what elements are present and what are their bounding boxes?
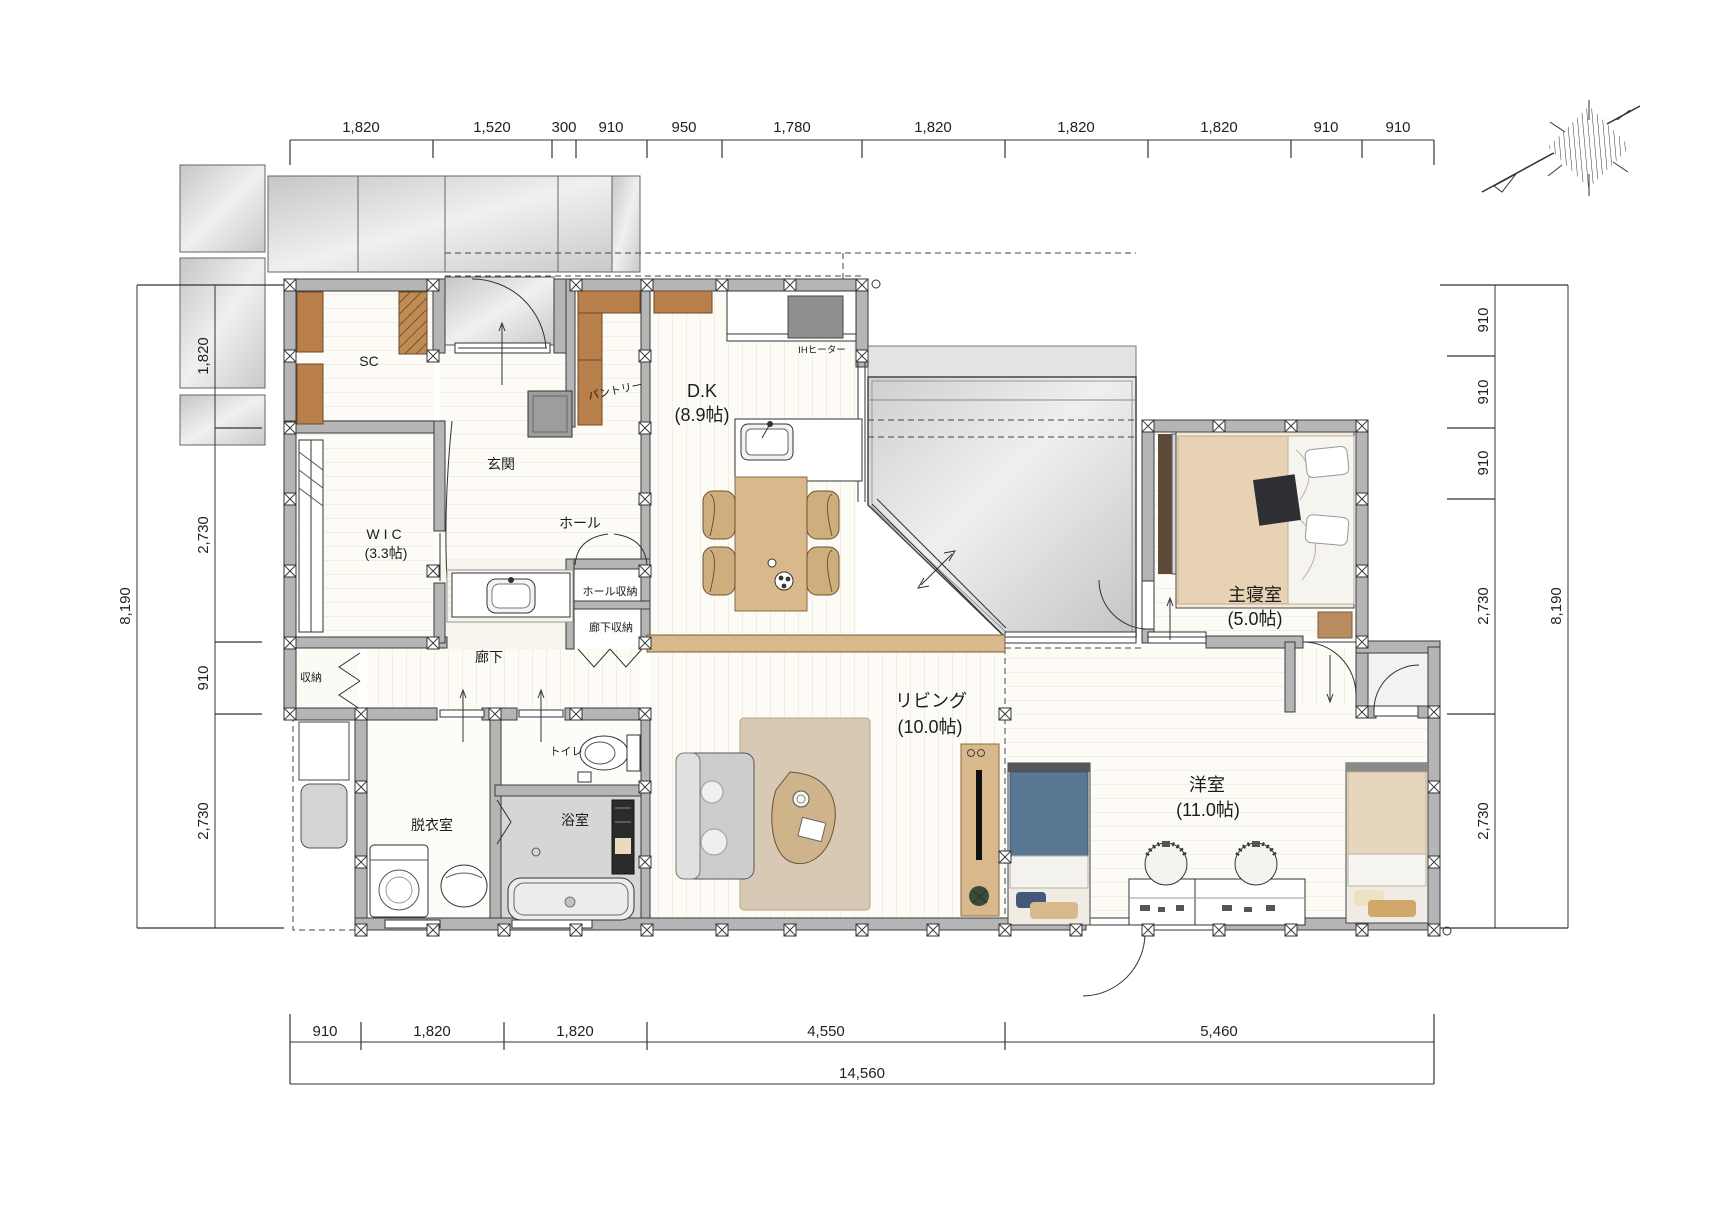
label-master-size: (5.0帖) bbox=[1227, 609, 1282, 629]
vanity-counter bbox=[447, 570, 573, 622]
dim-bottom-5: 5,460 bbox=[1200, 1023, 1238, 1040]
label-master: 主寝室 bbox=[1228, 585, 1282, 605]
corner-marker bbox=[872, 280, 880, 288]
dim-top-11: 910 bbox=[1385, 119, 1410, 136]
label-western: 洋室 bbox=[1189, 775, 1225, 795]
tv bbox=[976, 770, 982, 860]
label-wic-size: (3.3帖) bbox=[365, 545, 408, 561]
washing-machine bbox=[370, 845, 428, 917]
study-desks bbox=[1129, 879, 1305, 925]
label-dressing: 脱衣室 bbox=[411, 817, 453, 833]
label-living: リビング bbox=[895, 691, 967, 711]
dimension-right: 910 910 910 2,730 2,730 8,190 bbox=[1440, 285, 1568, 928]
dim-bottom-3: 1,820 bbox=[556, 1023, 594, 1040]
label-storage: 収納 bbox=[300, 671, 322, 684]
dim-top-8: 1,820 bbox=[1057, 119, 1095, 136]
north-arrow-icon bbox=[1482, 100, 1640, 196]
bed-beige bbox=[1346, 763, 1428, 923]
dim-left-1: 1,820 bbox=[195, 337, 212, 375]
dimension-bottom: 910 1,820 1,820 4,550 5,460 14,560 bbox=[290, 1014, 1434, 1084]
dim-right-total: 8,190 bbox=[1548, 587, 1565, 625]
dim-bottom-1: 910 bbox=[312, 1023, 337, 1040]
dim-right-1: 910 bbox=[1475, 307, 1492, 332]
dim-bottom-2: 1,820 bbox=[413, 1023, 451, 1040]
dim-left-total: 8,190 bbox=[117, 587, 134, 625]
label-corridor-storage: 廊下収納 bbox=[589, 620, 633, 634]
dim-top-1: 1,820 bbox=[342, 119, 380, 136]
label-genkan: 玄関 bbox=[487, 456, 515, 472]
table-item bbox=[768, 559, 776, 567]
wood-beam bbox=[647, 635, 1005, 652]
dim-right-2: 910 bbox=[1475, 379, 1492, 404]
shoe-cabinet bbox=[399, 292, 427, 354]
dim-top-10: 910 bbox=[1313, 119, 1338, 136]
label-hall-storage: ホール収納 bbox=[583, 585, 638, 598]
dimension-top: 1,820 1,520 300 910 950 1,780 1,820 1,82… bbox=[290, 119, 1434, 165]
shower-unit bbox=[612, 800, 634, 874]
dim-left-4: 2,730 bbox=[195, 802, 212, 840]
bed-throw bbox=[1253, 474, 1301, 525]
dim-right-4: 2,730 bbox=[1475, 587, 1492, 625]
dim-bottom-total: 14,560 bbox=[839, 1065, 885, 1082]
label-dk-size: (8.9帖) bbox=[674, 405, 729, 425]
dim-left-2: 2,730 bbox=[195, 516, 212, 554]
label-ih: IHヒーター bbox=[798, 345, 846, 356]
dim-top-4: 910 bbox=[598, 119, 623, 136]
label-wic: WIC bbox=[366, 526, 405, 542]
dim-left-3: 910 bbox=[195, 665, 212, 690]
label-corridor: 廊下 bbox=[475, 649, 503, 665]
bedside-table bbox=[1318, 612, 1352, 638]
label-dk: D.K bbox=[687, 381, 717, 401]
ih-cooktop bbox=[788, 296, 843, 338]
master-bedroom-furniture bbox=[1158, 432, 1354, 638]
dim-top-3: 300 bbox=[551, 119, 576, 136]
floor-plan-page: SC 玄関 WIC (3.3帖) パントリー D.K (8.9帖) IHヒーター… bbox=[0, 0, 1719, 1218]
label-sc: SC bbox=[359, 353, 378, 369]
dim-bottom-4: 4,550 bbox=[807, 1023, 845, 1040]
outdoor-water-heater bbox=[299, 722, 349, 848]
dim-right-5: 2,730 bbox=[1475, 802, 1492, 840]
balcony bbox=[868, 346, 1136, 637]
dim-top-9: 1,820 bbox=[1200, 119, 1238, 136]
label-bath: 浴室 bbox=[561, 812, 589, 828]
wic-hanger-pipe bbox=[299, 440, 323, 632]
dim-top-6: 1,780 bbox=[773, 119, 811, 136]
dim-right-3: 910 bbox=[1475, 450, 1492, 475]
entrance-porch bbox=[445, 277, 554, 345]
floor-plan-drawing: SC 玄関 WIC (3.3帖) パントリー D.K (8.9帖) IHヒーター… bbox=[0, 0, 1719, 1218]
label-toilet: トイレ bbox=[550, 746, 583, 758]
bed-blue bbox=[1008, 763, 1090, 925]
dim-top-7: 1,820 bbox=[914, 119, 952, 136]
laundry-basket bbox=[441, 865, 487, 907]
pipe-space bbox=[528, 391, 572, 437]
label-western-size: (11.0帖) bbox=[1176, 800, 1240, 820]
label-hall: ホール bbox=[559, 515, 601, 531]
dim-top-5: 950 bbox=[671, 119, 696, 136]
dim-top-2: 1,520 bbox=[473, 119, 511, 136]
label-living-size: (10.0帖) bbox=[897, 717, 962, 737]
master-closet bbox=[1158, 434, 1172, 574]
dining-table bbox=[735, 477, 807, 611]
